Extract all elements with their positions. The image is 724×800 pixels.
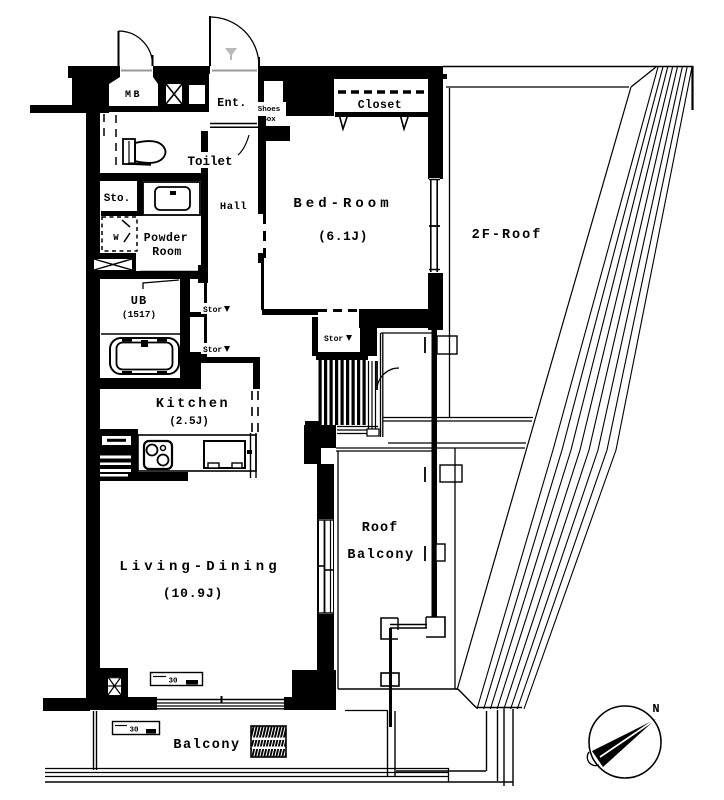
svg-text:(1517): (1517) (122, 309, 156, 320)
svg-text:Stor: Stor (203, 306, 222, 315)
svg-text:Bed-Room: Bed-Room (293, 196, 392, 212)
svg-text:Stor: Stor (203, 346, 222, 355)
svg-text:Ent.: Ent. (217, 97, 247, 110)
svg-text:(6.1J): (6.1J) (318, 229, 368, 244)
svg-text:Kitchen: Kitchen (156, 397, 230, 412)
svg-text:Room: Room (152, 246, 182, 259)
svg-text:UB: UB (131, 294, 147, 308)
svg-text:Stor: Stor (324, 335, 343, 344)
svg-text:W: W (113, 233, 119, 243)
svg-text:Living-Dining: Living-Dining (119, 559, 280, 575)
svg-text:Powder: Powder (144, 232, 188, 245)
svg-text:(10.9J): (10.9J) (163, 586, 223, 601)
svg-text:30: 30 (129, 727, 139, 735)
svg-text:2F-Roof: 2F-Roof (472, 228, 543, 243)
svg-text:Balcony: Balcony (347, 548, 414, 563)
svg-text:Shoes: Shoes (258, 106, 281, 114)
svg-text:Hall: Hall (220, 201, 247, 213)
svg-text:Closet: Closet (358, 99, 402, 112)
svg-text:MB: MB (125, 90, 142, 101)
svg-text:N: N (652, 702, 659, 716)
svg-text:Roof: Roof (362, 521, 398, 536)
svg-text:(2.5J): (2.5J) (169, 416, 209, 428)
svg-text:Toilet: Toilet (187, 155, 232, 169)
svg-text:Balcony: Balcony (173, 738, 240, 753)
svg-text:30: 30 (168, 678, 178, 686)
svg-text:Sto.: Sto. (104, 193, 130, 205)
